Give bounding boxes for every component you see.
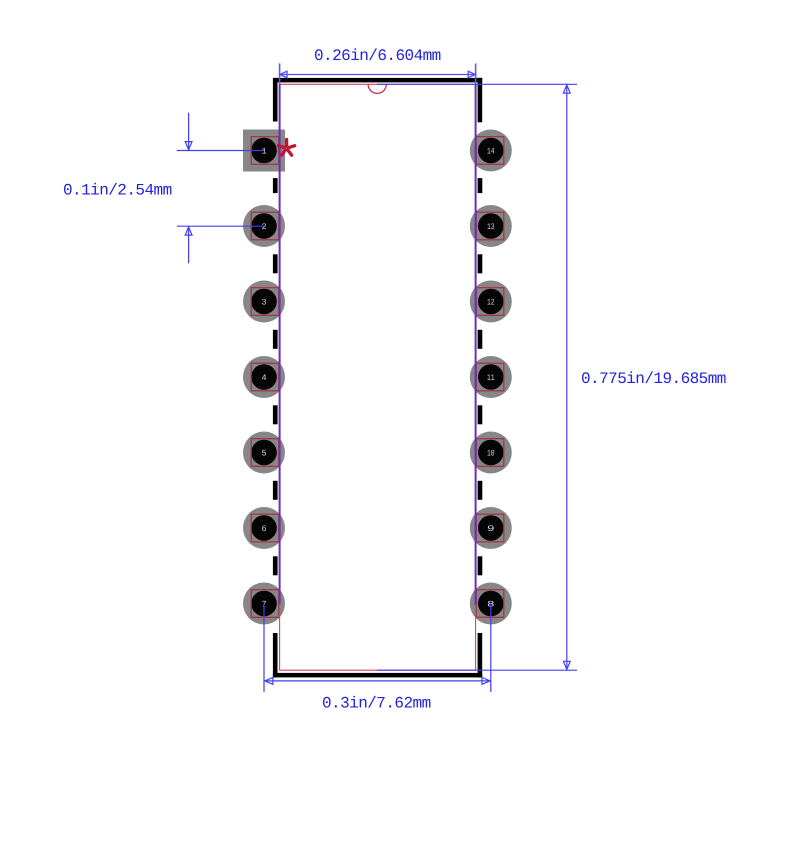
svg-text:0.26in/6.604mm: 0.26in/6.604mm — [314, 47, 441, 65]
svg-text:9: 9 — [487, 524, 495, 534]
svg-text:0.3in/7.62mm: 0.3in/7.62mm — [322, 694, 431, 712]
svg-text:1: 1 — [261, 147, 266, 157]
svg-text:2: 2 — [261, 222, 266, 232]
svg-text:14: 14 — [487, 147, 495, 157]
svg-text:3: 3 — [261, 298, 266, 308]
svg-text:4: 4 — [261, 373, 266, 383]
svg-text:11: 11 — [487, 373, 495, 383]
svg-text:13: 13 — [487, 222, 495, 232]
svg-text:0.1in/2.54mm: 0.1in/2.54mm — [63, 182, 172, 200]
svg-text:10: 10 — [487, 449, 495, 459]
svg-text:0.775in/19.685mm: 0.775in/19.685mm — [581, 370, 726, 388]
svg-text:12: 12 — [487, 298, 495, 308]
svg-text:6: 6 — [261, 524, 266, 534]
svg-text:5: 5 — [261, 449, 266, 459]
